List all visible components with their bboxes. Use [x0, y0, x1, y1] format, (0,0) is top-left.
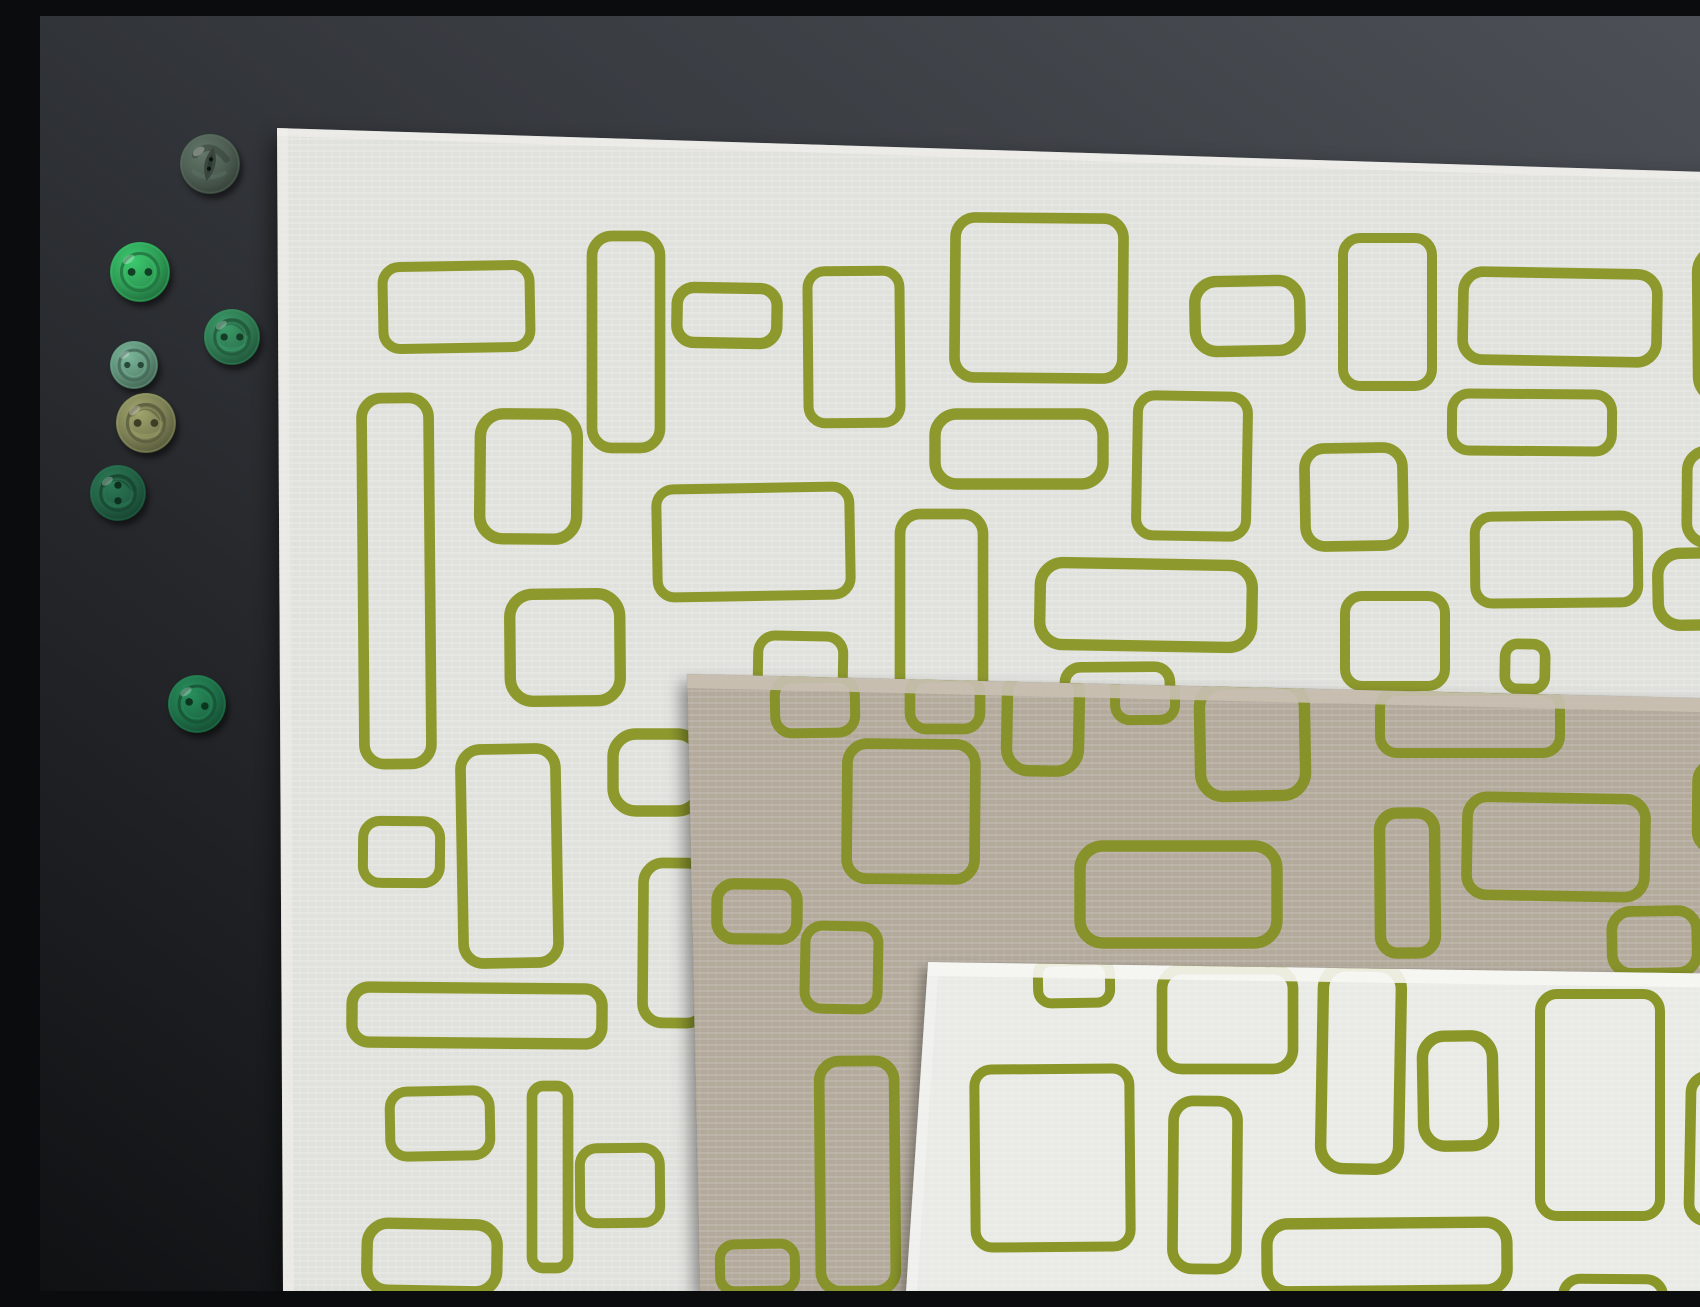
white-linen-small — [906, 960, 1700, 1291]
button-hole — [114, 497, 121, 504]
fabric-flatlay-photo — [40, 16, 1700, 1291]
button-face — [90, 465, 146, 521]
button-hole — [128, 268, 136, 276]
linen-texture — [906, 962, 1700, 1291]
button-face — [116, 393, 176, 453]
photo-canvas — [40, 16, 1700, 1291]
button-face — [110, 341, 158, 389]
button-hole — [201, 702, 209, 710]
button-hole — [124, 362, 130, 368]
button-hole — [134, 419, 142, 427]
button-hole — [114, 482, 121, 489]
button-hole — [221, 333, 228, 340]
button-hole — [185, 698, 193, 706]
print-rect — [1697, 764, 1700, 850]
button-face — [110, 242, 170, 302]
button-face — [204, 309, 260, 365]
button-face — [168, 675, 226, 733]
button-hole — [236, 333, 243, 340]
button-hole — [138, 362, 144, 368]
button-hole — [145, 268, 153, 276]
button-hole — [151, 419, 159, 427]
